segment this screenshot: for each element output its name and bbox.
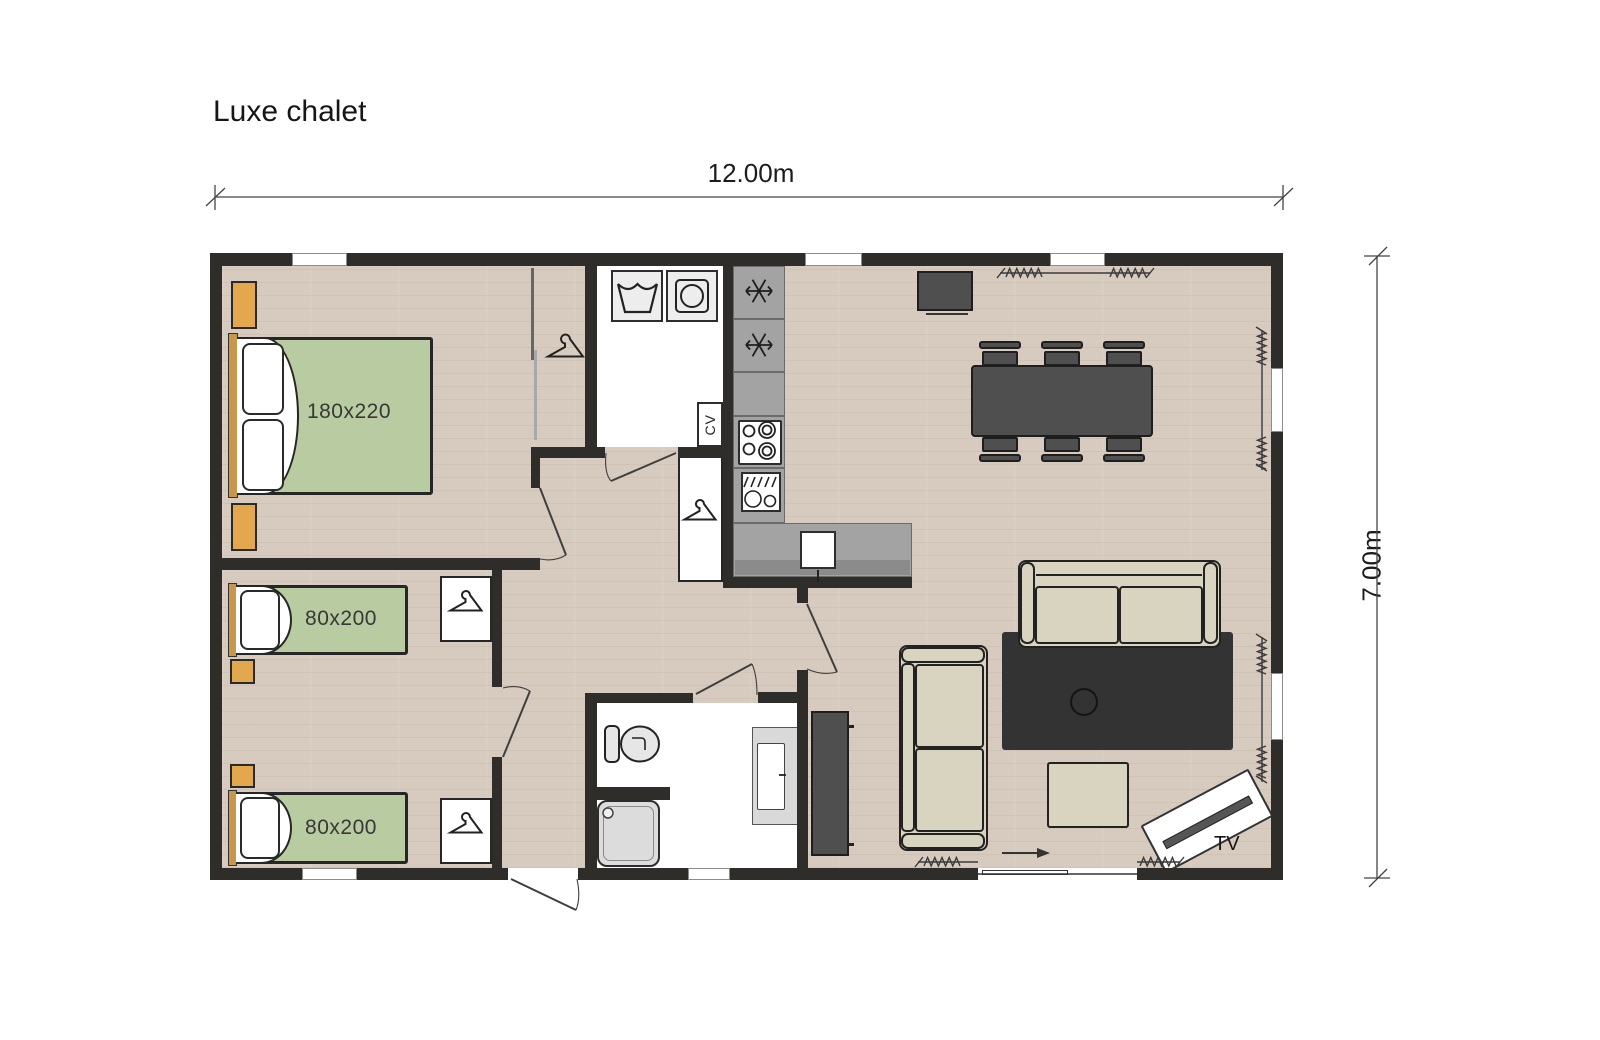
dryer xyxy=(666,270,718,322)
wall-segment xyxy=(1271,253,1283,368)
wall-segment xyxy=(492,570,502,687)
wall-segment xyxy=(210,253,292,266)
hall-closet xyxy=(678,452,723,582)
entry-door-opening xyxy=(508,868,578,880)
wall-segment xyxy=(592,787,670,800)
window xyxy=(1271,368,1283,432)
single-bed-size-label: 80x200 xyxy=(282,607,400,631)
wall-segment xyxy=(357,868,508,880)
wardrobe xyxy=(440,576,492,642)
wall-segment xyxy=(1271,740,1283,880)
wall-segment xyxy=(862,253,1050,266)
ottoman xyxy=(1047,762,1129,828)
wall-segment xyxy=(210,253,222,880)
sofa-cushion xyxy=(1119,586,1203,644)
sideboard xyxy=(917,271,973,311)
rug-table-circle xyxy=(1070,688,1098,716)
cabinet-handle xyxy=(848,725,854,728)
dining-chair-seat xyxy=(1044,437,1080,452)
wall-segment xyxy=(347,253,805,266)
sofa-cushion xyxy=(915,748,984,832)
kitchen-cabinet xyxy=(733,372,785,416)
dining-chair-back xyxy=(1041,454,1083,462)
sliding-door-panel xyxy=(982,870,1068,875)
window xyxy=(805,253,862,266)
kitchen-sink xyxy=(800,531,836,569)
plan-title: Luxe chalet xyxy=(213,95,366,129)
floor-plan-page: Luxe chalet 12.00m 7.00m TV xyxy=(0,0,1600,1040)
cv-heater-box: CV xyxy=(697,402,723,447)
fridge-cabinet xyxy=(733,319,785,372)
sliding-wardrobe-door xyxy=(534,350,537,440)
sliding-wardrobe-door xyxy=(531,268,534,360)
cv-heater-label: CV xyxy=(702,414,718,435)
pillow xyxy=(240,797,280,859)
dining-chair-back xyxy=(979,454,1021,462)
wall-segment xyxy=(797,588,808,603)
wall-segment xyxy=(578,868,688,880)
wall-segment xyxy=(585,703,597,868)
sofa-back-seam xyxy=(1036,574,1202,576)
nightstand xyxy=(230,764,255,788)
sofa-armrest-right xyxy=(1203,562,1218,644)
dishwasher xyxy=(741,472,781,512)
pillow xyxy=(242,419,284,491)
storage-cabinet xyxy=(811,711,849,856)
wall-segment xyxy=(758,692,797,703)
dining-chair-back xyxy=(1103,454,1145,462)
washing-machine xyxy=(611,270,663,322)
entry-door xyxy=(511,879,579,910)
wall-segment xyxy=(723,266,733,588)
sofa-armrest-top xyxy=(901,647,985,663)
width-dimension-label: 12.00m xyxy=(651,158,851,189)
dining-chair-seat xyxy=(982,437,1018,452)
wall-segment xyxy=(1271,432,1283,673)
sofa-cushion xyxy=(915,664,984,748)
nightstand xyxy=(230,659,255,684)
sofa-armrest-left xyxy=(1020,562,1035,644)
wall-segment xyxy=(678,447,723,458)
pillow xyxy=(240,590,280,650)
sofa-cushion xyxy=(1035,586,1119,644)
height-dimension-label: 7.00m xyxy=(1357,511,1388,621)
dining-chair-seat xyxy=(1106,437,1142,452)
wall-segment xyxy=(733,577,912,588)
stove-top xyxy=(738,420,782,465)
living-room-rug xyxy=(1002,632,1233,750)
dining-chair-back xyxy=(1041,341,1083,349)
dining-chair-seat xyxy=(1044,351,1080,366)
shower-tray xyxy=(597,800,660,867)
wall-segment xyxy=(222,558,540,570)
wardrobe xyxy=(440,798,492,864)
nightstand xyxy=(231,281,257,329)
wall-segment xyxy=(585,693,693,703)
wall-segment xyxy=(531,458,540,488)
window xyxy=(292,253,347,266)
cabinet-handle xyxy=(848,843,854,846)
double-bed-size-label: 180x220 xyxy=(290,400,408,424)
sofa-backrest xyxy=(901,663,915,832)
wall-segment xyxy=(797,703,808,868)
dining-table xyxy=(971,365,1153,437)
single-bed-size-label: 80x200 xyxy=(282,816,400,840)
tv-label: TV xyxy=(1214,833,1264,856)
wall-segment xyxy=(1105,253,1283,266)
wall-segment xyxy=(210,868,302,880)
wall-segment xyxy=(531,447,605,458)
wall-segment xyxy=(585,266,597,447)
washbasin xyxy=(757,743,785,810)
wall-segment xyxy=(492,757,502,868)
dining-chair-seat xyxy=(982,351,1018,366)
freezer-cabinet xyxy=(733,266,785,319)
window xyxy=(1271,673,1283,740)
window xyxy=(302,868,357,880)
sideboard-base xyxy=(926,313,968,315)
dining-chair-seat xyxy=(1106,351,1142,366)
window xyxy=(688,868,730,880)
wall-segment xyxy=(797,670,808,703)
nightstand xyxy=(231,503,257,551)
shower-tray-inner xyxy=(603,806,654,861)
dining-chair-back xyxy=(1103,341,1145,349)
dining-chair-back xyxy=(979,341,1021,349)
window xyxy=(1050,253,1105,266)
pillow xyxy=(242,343,284,415)
sofa-armrest-bottom xyxy=(901,833,985,849)
wall-segment xyxy=(1137,868,1283,880)
wall-segment xyxy=(730,868,978,880)
